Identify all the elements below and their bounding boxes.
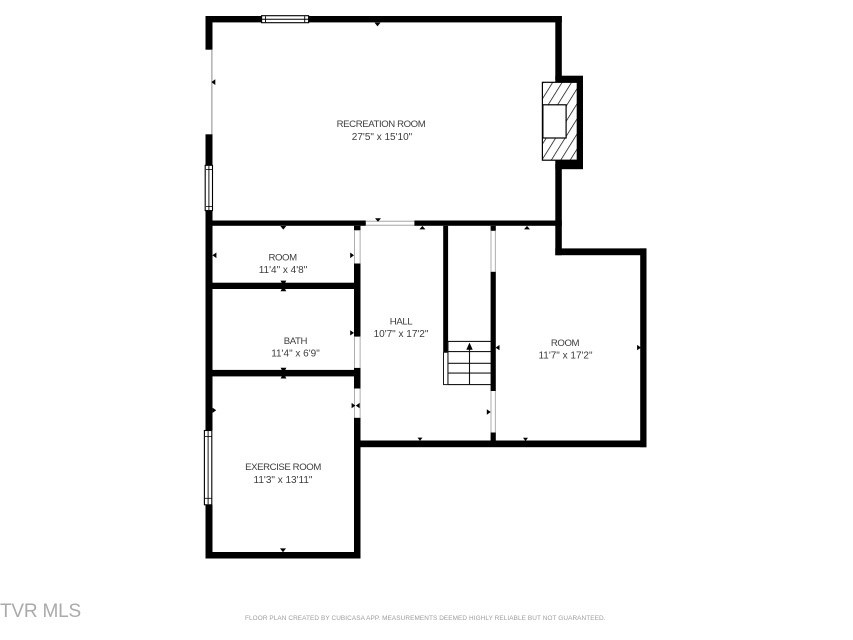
svg-text:11'7" x 17'2": 11'7" x 17'2" <box>538 351 593 362</box>
svg-text:11'4" x 4'8": 11'4" x 4'8" <box>259 265 308 276</box>
svg-text:27'5" x 15'10": 27'5" x 15'10" <box>352 132 413 143</box>
svg-text:ROOM: ROOM <box>551 338 580 349</box>
svg-text:FLOOR PLAN CREATED BY CUBICASA: FLOOR PLAN CREATED BY CUBICASA APP. MEAS… <box>245 615 606 622</box>
svg-text:HALL: HALL <box>390 317 413 328</box>
svg-text:10'7" x 17'2": 10'7" x 17'2" <box>374 329 429 340</box>
svg-text:BATH: BATH <box>284 336 308 347</box>
svg-text:TVR MLS: TVR MLS <box>0 601 81 622</box>
svg-text:EXERCISE ROOM: EXERCISE ROOM <box>245 462 321 473</box>
svg-text:RECREATION ROOM: RECREATION ROOM <box>337 119 426 130</box>
svg-text:ROOM: ROOM <box>268 252 297 263</box>
svg-text:11'3" x 13'11": 11'3" x 13'11" <box>254 475 313 486</box>
svg-text:11'4" x 6'9": 11'4" x 6'9" <box>271 349 320 360</box>
